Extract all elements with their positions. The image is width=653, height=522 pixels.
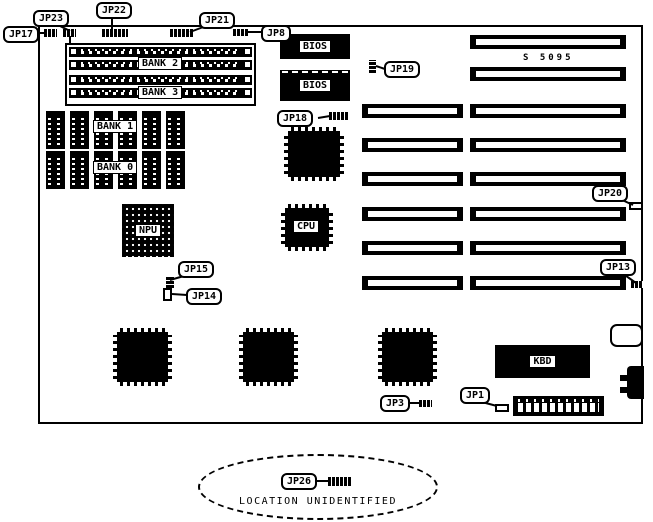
simm-bracket-right — [243, 88, 252, 97]
bank3-label: BANK 3 — [138, 86, 182, 99]
jp8-jumper — [233, 29, 248, 36]
din-connector-tab — [620, 375, 627, 381]
crystal-outline — [610, 324, 643, 347]
jp20-jumper — [629, 202, 643, 210]
bank1-label: BANK 1 — [93, 120, 137, 133]
cpu-chip-pins-left — [281, 211, 285, 244]
jp14-label: JP14 — [186, 288, 222, 305]
expansion-slot-long — [470, 35, 626, 49]
memory-dip-chip — [142, 111, 161, 149]
jp22-label: JP22 — [96, 2, 132, 19]
simm-bracket-left — [69, 75, 78, 84]
expansion-slot-short — [362, 138, 463, 152]
jumper-location-diagram: BANK 2 BANK 3 BANK 1 BANK 0 BIOS BIOS NP… — [0, 0, 653, 522]
bios-chip-bottom: BIOS — [280, 70, 350, 101]
chipset-chip-pins-left — [284, 134, 288, 174]
expansion-slot-short — [362, 172, 463, 186]
location-unidentified-text: LOCATION UNIDENTIFIED — [200, 496, 436, 507]
jp20-label: JP20 — [592, 185, 628, 202]
simm-bracket-right — [243, 75, 252, 84]
expansion-slot-long — [470, 172, 626, 186]
jp3-jumper — [419, 400, 432, 407]
cpu-chip-pins-right — [329, 211, 333, 244]
chipset-chip — [288, 131, 340, 177]
jp3-label: JP3 — [380, 395, 410, 412]
jp14-jumper — [163, 288, 172, 301]
io-chip-pins-bottom — [246, 382, 291, 386]
memory-dip-chip — [166, 151, 185, 189]
bank0-label: BANK 0 — [93, 161, 137, 174]
din-connector-tab — [620, 387, 627, 393]
chipset-chip-pins-top — [291, 127, 337, 131]
io-chip-pins-left — [378, 335, 382, 379]
simm-strip — [69, 75, 252, 85]
memory-dip-chip — [46, 111, 65, 149]
jp21-jumper — [170, 29, 193, 37]
jp13-label: JP13 — [600, 259, 636, 276]
chipset-chip-pins-right — [340, 134, 344, 174]
io-chip-pins-top — [385, 328, 430, 332]
simm-bracket-right — [243, 47, 252, 56]
cpu-chip-pins-bottom — [288, 247, 326, 251]
io-chip-pins-top — [120, 328, 165, 332]
memory-dip-chip — [70, 151, 89, 189]
io-chip-pins-right — [168, 335, 172, 379]
npu-chip-label: NPU — [135, 224, 161, 237]
expansion-slot-long — [470, 104, 626, 118]
io-chip — [243, 332, 294, 382]
bios-chip-top-label: BIOS — [299, 40, 331, 53]
simm-bracket-left — [69, 60, 78, 69]
io-chip-pins-left — [113, 335, 117, 379]
keyboard-din-connector — [627, 366, 644, 399]
io-chip-pins-top — [246, 328, 291, 332]
expansion-slot-short — [362, 276, 463, 290]
jp23-label: JP23 — [33, 10, 69, 27]
jp26-label: JP26 — [281, 473, 317, 490]
jp15-label: JP15 — [178, 261, 214, 278]
jp26-jumper — [328, 477, 351, 486]
expansion-slot-long — [470, 67, 626, 81]
io-chip-pins-right — [433, 335, 437, 379]
jp19-label: JP19 — [384, 61, 420, 78]
cpu-chip-label: CPU — [293, 220, 319, 233]
jp19-jumper — [369, 60, 376, 73]
simm-strip — [69, 47, 252, 57]
jp1-label: JP1 — [460, 387, 490, 404]
memory-dip-chip — [70, 111, 89, 149]
io-chip — [382, 332, 433, 382]
jp13-jumper — [631, 281, 643, 288]
bank2-label: BANK 2 — [138, 57, 182, 70]
silkscreen-model-text: S 5095 — [523, 53, 574, 63]
location-unidentified-ellipse: LOCATION UNIDENTIFIED — [198, 454, 438, 520]
kbd-chip: KBD — [495, 345, 590, 378]
io-chip-pins-right — [294, 335, 298, 379]
expansion-slot-long — [470, 241, 626, 255]
memory-dip-chip — [46, 151, 65, 189]
jp21-label: JP21 — [199, 12, 235, 29]
expansion-slot-short — [362, 207, 463, 221]
bios-socket-divider — [282, 71, 348, 73]
jp1-jumper — [495, 404, 509, 412]
jp22-jumper — [102, 29, 128, 37]
expansion-slot-long — [470, 276, 626, 290]
npu-chip: NPU — [122, 204, 174, 257]
jp18-jumper — [329, 112, 348, 120]
expansion-slot-short — [362, 104, 463, 118]
simm-bracket-right — [243, 60, 252, 69]
expansion-slot-short — [362, 241, 463, 255]
cpu-chip-pins-top — [288, 204, 326, 208]
simm-bracket-left — [69, 88, 78, 97]
chipset-chip-pins-bottom — [291, 177, 337, 181]
bios-chip-bottom-label: BIOS — [299, 79, 331, 92]
jp8-label: JP8 — [261, 25, 291, 42]
io-chip — [117, 332, 168, 382]
expansion-slot-long — [470, 207, 626, 221]
expansion-slot-long — [470, 138, 626, 152]
jp17-label: JP17 — [3, 26, 39, 43]
kbd-chip-label: KBD — [529, 355, 555, 368]
memory-dip-chip — [142, 151, 161, 189]
memory-dip-chip — [166, 111, 185, 149]
io-chip-pins-bottom — [385, 382, 430, 386]
jp18-label: JP18 — [277, 110, 313, 127]
jp17-jumper — [44, 29, 57, 37]
io-chip-pins-left — [239, 335, 243, 379]
io-chip-pins-bottom — [120, 382, 165, 386]
jp15-jumper — [166, 276, 174, 288]
jp23-jumper — [63, 29, 76, 37]
simm-bracket-left — [69, 47, 78, 56]
keyboard-pin-header — [513, 396, 604, 416]
